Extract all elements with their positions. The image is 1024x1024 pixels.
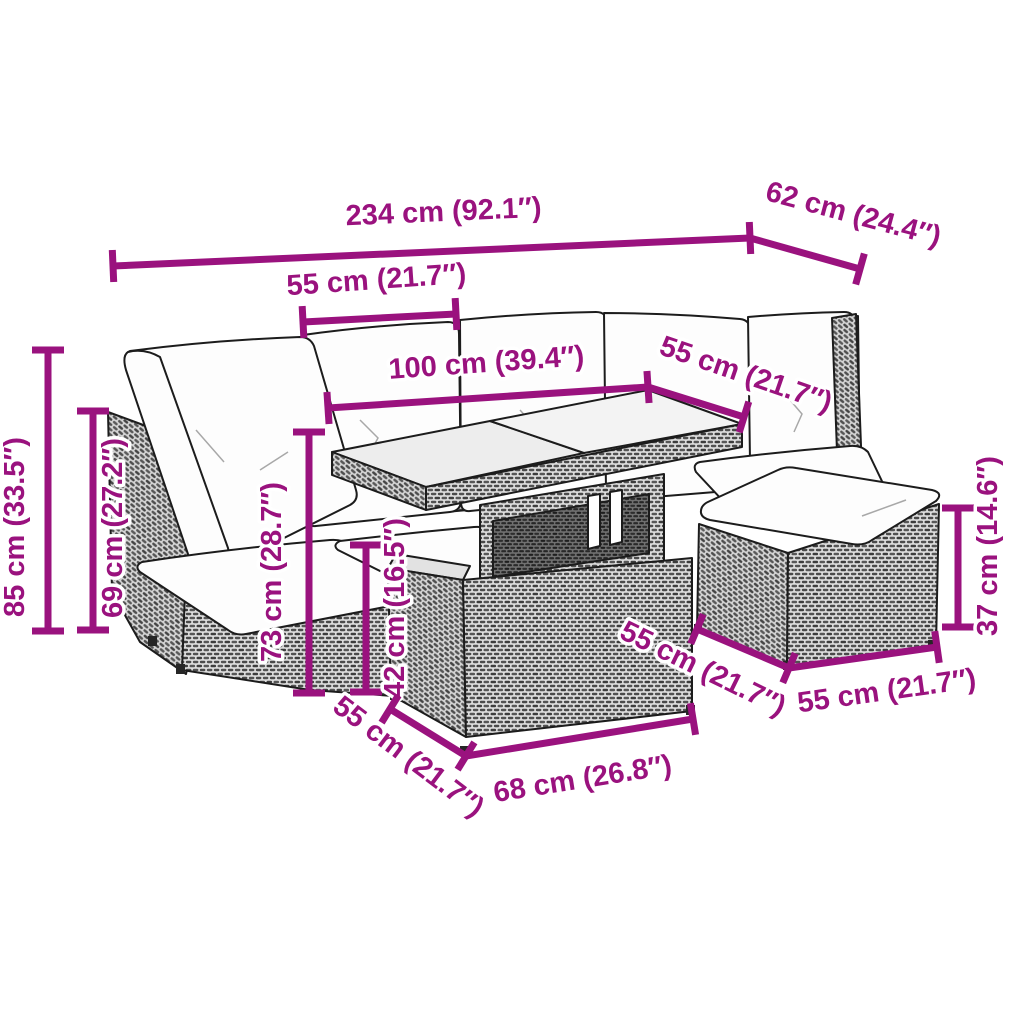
overall-width-label: 234 cm (92.1″) [345,192,542,233]
back-height-dimension: 85 cm (33.5″) [0,350,64,631]
stool-width-label: 68 cm (26.8″) [491,749,674,809]
dimension-diagram: 234 cm (92.1″)62 cm (24.4″)55 cm (21.7″)… [0,0,1024,1024]
furniture-illustration: 234 cm (92.1″)62 cm (24.4″)55 cm (21.7″)… [0,0,1024,1024]
back-height-label: 85 cm (33.5″) [0,437,31,617]
ottoman-width-label: 55 cm (21.7″) [795,663,978,720]
arm-height-label: 69 cm (27.2″) [97,438,129,618]
sofa-foot [176,664,185,674]
overall-depth-label: 62 cm (24.4″) [762,176,944,253]
table-leg [610,490,622,545]
seat-section-width-label: 55 cm (21.7″) [286,258,468,302]
ottoman-height-label: 37 cm (14.6″) [972,456,1004,636]
ottoman-height-dimension: 37 cm (14.6″) [942,456,1004,636]
arm-height-dimension: 69 cm (27.2″) [77,411,129,630]
table-leg [588,494,600,549]
sofa-foot [148,636,157,646]
stool-height-label: 42 cm (16.5″) [379,518,411,698]
overall-depth-dimension: 62 cm (24.4″) [750,176,944,285]
table-height-label: 73 cm (28.7″) [256,482,288,662]
